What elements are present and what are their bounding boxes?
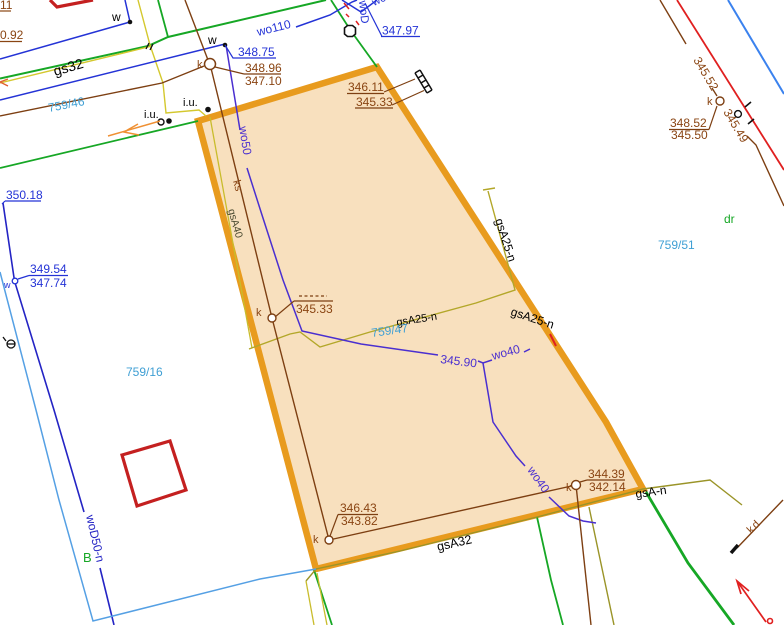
svg-text:346.11: 346.11	[348, 80, 384, 94]
svg-text:348.75: 348.75	[238, 45, 275, 59]
svg-text:dr: dr	[724, 212, 735, 226]
svg-text:k: k	[566, 482, 572, 494]
svg-text:0.92: 0.92	[0, 28, 24, 42]
svg-text:k: k	[313, 534, 319, 546]
svg-text:345.50: 345.50	[671, 128, 708, 142]
svg-text:349.54: 349.54	[30, 262, 67, 276]
svg-text:k: k	[197, 59, 203, 71]
svg-text:345.33: 345.33	[356, 95, 393, 109]
svg-text:B: B	[83, 550, 92, 565]
svg-text:347.97: 347.97	[382, 24, 419, 38]
svg-text:k: k	[256, 307, 262, 319]
svg-text:11: 11	[0, 0, 13, 12]
svg-text:759/16: 759/16	[126, 365, 163, 379]
svg-text:347.10: 347.10	[245, 74, 282, 88]
svg-text:woD: woD	[356, 0, 370, 24]
svg-text:342.14: 342.14	[589, 480, 626, 494]
svg-text:k: k	[707, 96, 713, 108]
svg-text:350.18: 350.18	[6, 188, 43, 202]
svg-text:w: w	[111, 10, 121, 24]
svg-text:w: w	[207, 33, 217, 47]
svg-text:345.33: 345.33	[296, 302, 333, 316]
svg-text:759/51: 759/51	[658, 238, 695, 252]
svg-text:346.43: 346.43	[340, 501, 377, 515]
svg-text:i.u.: i.u.	[183, 97, 198, 109]
svg-text:343.82: 343.82	[341, 514, 378, 528]
svg-text:w: w	[3, 280, 11, 290]
svg-text:347.74: 347.74	[30, 276, 67, 290]
svg-text:344.39: 344.39	[588, 467, 625, 481]
svg-text:348.96: 348.96	[245, 61, 282, 75]
svg-text:i.u.: i.u.	[144, 109, 159, 121]
